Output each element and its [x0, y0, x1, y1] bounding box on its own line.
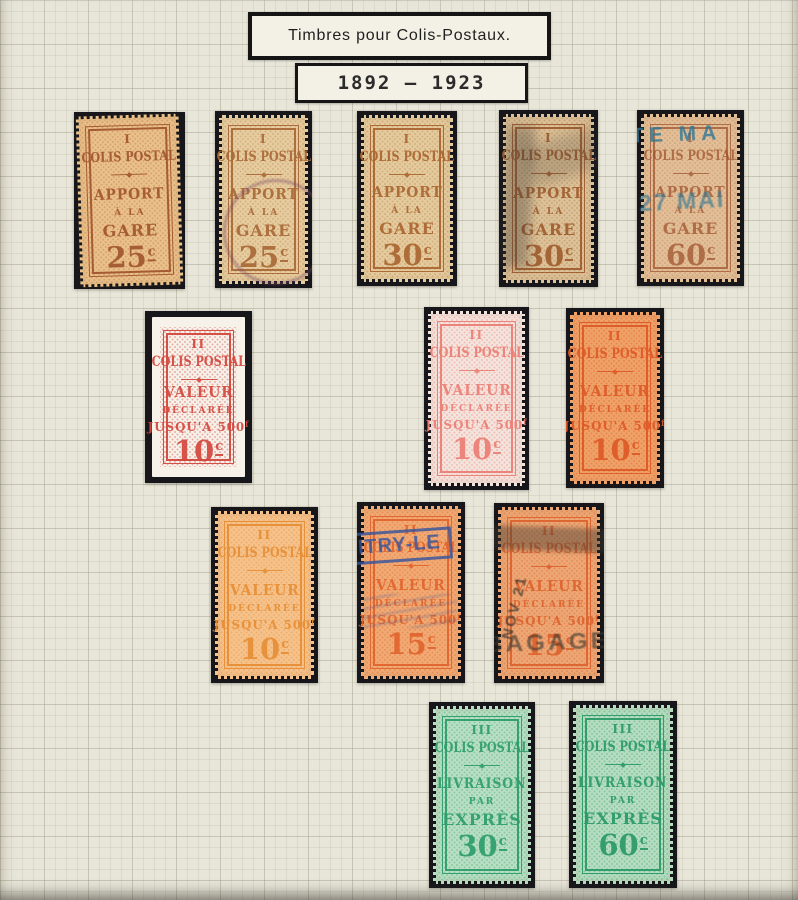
stamp-face: I COLIS POSTAL APPORT À LA GARE 30c	[372, 127, 442, 270]
series-numeral: I	[403, 132, 410, 146]
stamp-line1: VALEUR	[164, 383, 234, 401]
stamp-title: COLIS POSTAL	[576, 739, 670, 755]
stamp-line3: JUSQU'A 500f	[214, 617, 316, 632]
stamp-title: COLIS POSTAL	[216, 149, 310, 165]
album-period-label: 1892 – 1923	[295, 63, 528, 103]
stamp-line1: APPORT	[372, 183, 443, 201]
series-numeral: II	[191, 337, 205, 351]
heavy-postmark-bar	[494, 525, 604, 553]
ornament-divider	[673, 170, 709, 176]
stamp-apport-30c-used: I COLIS POSTAL APPORT À LA GARE 30c	[499, 110, 598, 287]
heavy-postmark-text: BAGAGE	[494, 627, 604, 658]
stamp-title: COLIS POSTAL	[81, 148, 176, 167]
stamp-line1: LIVRAISON	[437, 776, 526, 792]
stamp-value: 30c	[524, 242, 573, 271]
stamp-line3: JUSQU'A 500f	[426, 417, 528, 432]
stamp-title: COLIS POSTAL	[435, 740, 529, 756]
stamp-valeur-15c-used-blue: II COLIS POSTAL VALEUR DÉCLARÉE JUSQU'A …	[357, 502, 465, 683]
stamp-line2: DÉCLARÉE	[579, 405, 651, 415]
ornament-divider	[459, 367, 495, 374]
stamp-paper: I COLIS POSTAL APPORT À LA GARE 25c	[76, 114, 184, 288]
ornament-divider	[389, 171, 425, 176]
stamp-valeur-15c-used-black: II COLIS POSTAL VALEUR DÉCLARÉE JUSQU'A …	[494, 503, 604, 683]
ornament-divider	[247, 567, 283, 574]
stamp-face: I COLIS POSTAL APPORT À LA GARE 25c	[87, 126, 172, 275]
stamp-line2: DÉCLARÉE	[440, 404, 512, 414]
stamp-line1: VALEUR	[376, 576, 446, 594]
stamp-paper: III COLIS POSTAL LIVRAISON PAR EXPRÈS 30…	[433, 706, 531, 884]
stamp-line3: EXPRÈS	[583, 809, 663, 828]
stamp-valeur-10c-red: II COLIS POSTAL VALEUR DÉCLARÉE JUSQU'A …	[145, 311, 252, 483]
album-title-text: Timbres pour Colis-Postaux.	[288, 27, 511, 45]
stamp-apport-60c-used: I COLIS POSTAL APPORT À LA GARE 60c TE M…	[637, 110, 744, 286]
stamp-apport-25c-mint: I COLIS POSTAL APPORT À LA GARE 25c	[74, 112, 185, 289]
stamp-line2: DÉCLARÉE	[162, 406, 234, 416]
stamp-line1: LIVRAISON	[578, 775, 667, 791]
stamp-face: II COLIS POSTAL VALEUR DÉCLARÉE JUSQU'A …	[226, 523, 303, 667]
stamp-title: COLIS POSTAL	[217, 545, 311, 561]
stamp-line3: GARE	[663, 219, 719, 238]
stamp-value: 10c	[452, 435, 501, 464]
stamp-line3: JUSQU'A 500f	[148, 419, 250, 434]
stamp-face: II COLIS POSTAL VALEUR DÉCLARÉE JUSQU'A …	[581, 324, 649, 472]
series-numeral: II	[608, 329, 622, 343]
stamp-line3: GARE	[379, 219, 435, 238]
stamp-title: COLIS POSTAL	[568, 346, 662, 362]
stamp-line2: À LA	[533, 207, 564, 217]
stamp-line2: À LA	[114, 208, 146, 219]
ornament-divider	[531, 563, 567, 570]
stamp-title: COLIS POSTAL	[429, 345, 523, 361]
stamp-line1: APPORT	[94, 184, 165, 204]
postmark-streaks	[363, 594, 457, 628]
ornament-divider	[111, 171, 147, 179]
stamp-valeur-10c-orange: II COLIS POSTAL VALEUR DÉCLARÉE JUSQU'A …	[211, 507, 318, 683]
album-page: Timbres pour Colis-Postaux. 1892 – 1923 …	[0, 0, 798, 900]
stamp-title: COLIS POSTAL	[151, 354, 245, 370]
stamp-paper: I COLIS POSTAL APPORT À LA GARE 30c	[361, 115, 453, 282]
stamp-value: 25c	[106, 242, 156, 272]
stamp-line2: PAR	[610, 796, 637, 806]
stamp-value: 60c	[598, 831, 647, 860]
stamp-value: 10c	[174, 437, 223, 466]
album-period-text: 1892 – 1923	[338, 72, 486, 94]
ornament-divider	[464, 762, 500, 769]
stamp-line1: VALEUR	[580, 382, 650, 400]
stamp-value: 60c	[666, 241, 715, 270]
stamp-line3: JUSQU'A 500f	[566, 418, 664, 433]
blue-overprint-postmark: 27 MAI	[638, 186, 725, 217]
stamp-line3: GARE	[102, 220, 158, 241]
stamp-line2: DÉCLARÉE	[228, 604, 300, 614]
stamp-line1: VALEUR	[230, 581, 300, 599]
stamp-paper: II COLIS POSTAL VALEUR DÉCLARÉE JUSQU'A …	[215, 511, 314, 679]
ornament-divider	[246, 171, 282, 178]
stamp-value: 30c	[382, 241, 431, 270]
series-numeral: II	[257, 528, 271, 542]
stamp-apport-30c-mint: I COLIS POSTAL APPORT À LA GARE 30c	[357, 111, 457, 286]
ornament-divider	[597, 368, 633, 375]
series-numeral: III	[471, 723, 492, 737]
stamp-title: COLIS POSTAL	[643, 148, 737, 164]
ornament-divider	[605, 761, 641, 768]
stamp-value: 10c	[590, 436, 639, 465]
stamp-expres-30c: III COLIS POSTAL LIVRAISON PAR EXPRÈS 30…	[429, 702, 535, 888]
series-numeral: I	[124, 132, 132, 146]
stamp-face: II COLIS POSTAL VALEUR DÉCLARÉE JUSQU'A …	[439, 323, 514, 474]
stamp-face: II COLIS POSTAL VALEUR DÉCLARÉE JUSQU'A …	[165, 332, 232, 462]
stamp-expres-60c: III COLIS POSTAL LIVRAISON PAR EXPRÈS 60…	[569, 701, 677, 888]
stamp-paper: III COLIS POSTAL LIVRAISON PAR EXPRÈS 60…	[573, 705, 673, 884]
blue-overprint-postmark: TE MA	[637, 121, 722, 148]
series-numeral: III	[612, 722, 633, 736]
stamp-paper: II COLIS POSTAL VALEUR DÉCLARÉE JUSQU'A …	[152, 317, 245, 477]
series-numeral: II	[469, 328, 483, 342]
stamp-face: III COLIS POSTAL LIVRAISON PAR EXPRÈS 30…	[444, 718, 520, 872]
stamp-line2: PAR	[469, 797, 496, 807]
stamp-paper: II COLIS POSTAL VALEUR DÉCLARÉE JUSQU'A …	[428, 311, 525, 486]
stamp-line1: VALEUR	[442, 381, 512, 399]
album-title-label: Timbres pour Colis-Postaux.	[248, 12, 551, 60]
stamp-face: III COLIS POSTAL LIVRAISON PAR EXPRÈS 60…	[584, 717, 662, 872]
stamp-value: 30c	[457, 832, 506, 861]
stamp-apport-25c-used: I COLIS POSTAL APPORT À LA GARE 25c	[215, 111, 312, 288]
ornament-divider	[393, 562, 429, 569]
series-numeral: I	[260, 132, 267, 146]
stamp-value: 10c	[240, 635, 289, 664]
stamp-valeur-10c-rose: II COLIS POSTAL VALEUR DÉCLARÉE JUSQU'A …	[424, 307, 529, 490]
stamp-paper: II COLIS POSTAL VALEUR DÉCLARÉE JUSQU'A …	[570, 312, 660, 484]
stamp-valeur-10c-orange-red: II COLIS POSTAL VALEUR DÉCLARÉE JUSQU'A …	[566, 308, 664, 488]
stamp-line3: EXPRÈS	[442, 810, 522, 829]
stamp-line2: À LA	[391, 206, 422, 216]
stamp-value: 15c	[386, 630, 435, 659]
stamp-title: COLIS POSTAL	[360, 149, 454, 165]
